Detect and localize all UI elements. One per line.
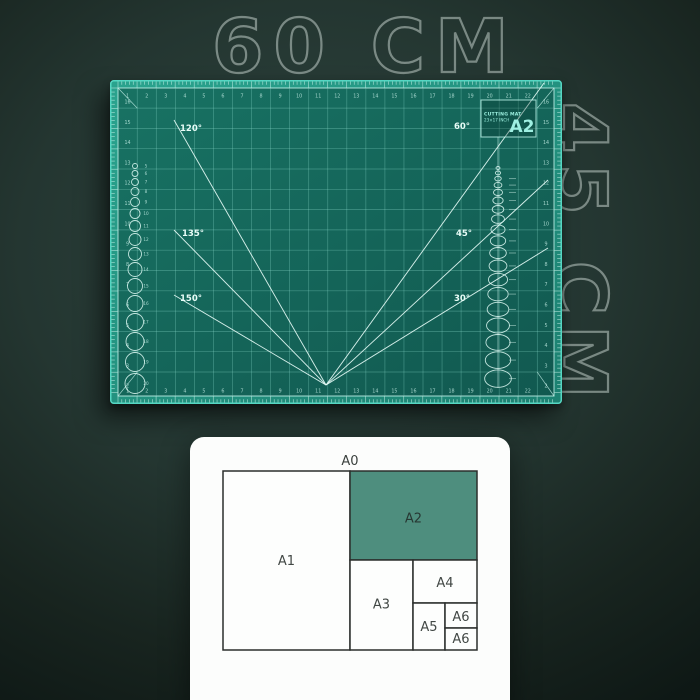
svg-text:17: 17 xyxy=(429,94,435,100)
svg-text:16: 16 xyxy=(410,94,416,100)
svg-text:1: 1 xyxy=(126,94,129,100)
width-dimension-label: 60 СМ xyxy=(212,4,519,90)
svg-text:3: 3 xyxy=(164,94,167,100)
svg-text:18: 18 xyxy=(143,339,149,344)
paper-a2-label: A2 xyxy=(405,512,422,527)
svg-text:15: 15 xyxy=(391,94,397,100)
paper-a6-bottom-label: A6 xyxy=(452,632,469,647)
svg-text:3: 3 xyxy=(544,363,547,369)
svg-text:15: 15 xyxy=(143,284,149,289)
svg-text:20: 20 xyxy=(487,389,493,395)
svg-text:14: 14 xyxy=(143,267,149,272)
svg-text:7: 7 xyxy=(240,94,243,100)
svg-text:10: 10 xyxy=(296,94,302,100)
svg-text:19: 19 xyxy=(468,389,474,395)
angle-label-150: 150° xyxy=(180,294,202,304)
svg-text:11: 11 xyxy=(315,94,321,100)
svg-text:12: 12 xyxy=(334,94,340,100)
svg-text:11: 11 xyxy=(315,389,321,395)
svg-text:13: 13 xyxy=(143,252,149,257)
svg-text:11: 11 xyxy=(543,201,549,207)
svg-text:13: 13 xyxy=(543,160,549,166)
svg-text:14: 14 xyxy=(372,389,378,395)
svg-text:8: 8 xyxy=(544,262,547,268)
svg-text:19: 19 xyxy=(143,360,149,365)
mat-subtitle-text: 23×17 INCH xyxy=(484,118,509,123)
cutting-mat-surface: 1122334455667788991010111112121313141415… xyxy=(110,80,562,404)
product-photo: 60 СМ 45 СМ 1122334455667788991010111112… xyxy=(0,0,700,700)
svg-text:6: 6 xyxy=(145,171,148,176)
svg-text:11: 11 xyxy=(143,224,149,229)
paper-a5-label: A5 xyxy=(420,620,437,635)
svg-text:8: 8 xyxy=(260,389,263,395)
svg-text:6: 6 xyxy=(221,94,224,100)
svg-text:8: 8 xyxy=(145,189,148,194)
svg-text:13: 13 xyxy=(353,389,359,395)
svg-text:13: 13 xyxy=(124,160,130,166)
svg-text:7: 7 xyxy=(240,389,243,395)
svg-text:2: 2 xyxy=(145,94,148,100)
paper-a0-label: A0 xyxy=(223,454,477,469)
svg-text:4: 4 xyxy=(183,389,186,395)
svg-text:10: 10 xyxy=(296,389,302,395)
paper-size-diagram: A1 A2 A3 A4 A5 A6 A6 xyxy=(221,469,479,653)
svg-text:4: 4 xyxy=(183,94,186,100)
svg-text:5: 5 xyxy=(202,94,205,100)
svg-text:6: 6 xyxy=(544,303,547,309)
angle-label-30: 30° xyxy=(454,294,470,304)
svg-text:21: 21 xyxy=(506,94,512,100)
paper-a4-label: A4 xyxy=(436,576,453,591)
svg-text:7: 7 xyxy=(145,180,148,185)
svg-text:5: 5 xyxy=(202,389,205,395)
svg-text:5: 5 xyxy=(544,323,547,329)
svg-text:13: 13 xyxy=(353,94,359,100)
mat-title-box: CUTTING MAT 23×17 INCH A2 xyxy=(481,100,536,137)
svg-text:22: 22 xyxy=(525,389,531,395)
svg-text:6: 6 xyxy=(221,389,224,395)
svg-text:5: 5 xyxy=(145,164,148,169)
svg-text:11: 11 xyxy=(124,201,130,207)
svg-text:20: 20 xyxy=(487,94,493,100)
svg-text:17: 17 xyxy=(143,320,149,325)
svg-text:10: 10 xyxy=(143,211,149,216)
angle-label-135: 135° xyxy=(182,229,204,239)
svg-text:12: 12 xyxy=(124,181,130,187)
svg-text:9: 9 xyxy=(279,94,282,100)
svg-text:4: 4 xyxy=(544,343,547,349)
svg-text:20: 20 xyxy=(143,381,149,386)
paper-a3-label: A3 xyxy=(373,598,390,613)
angle-label-120: 120° xyxy=(180,124,202,134)
cutting-mat: 1122334455667788991010111112121313141415… xyxy=(110,80,562,404)
paper-a1-label: A1 xyxy=(278,554,295,569)
svg-text:16: 16 xyxy=(543,100,549,106)
svg-text:8: 8 xyxy=(260,94,263,100)
svg-text:15: 15 xyxy=(391,389,397,395)
svg-text:18: 18 xyxy=(448,94,454,100)
svg-text:14: 14 xyxy=(124,140,130,146)
svg-text:9: 9 xyxy=(145,200,148,205)
svg-text:16: 16 xyxy=(410,389,416,395)
svg-text:2: 2 xyxy=(544,384,547,390)
svg-text:14: 14 xyxy=(543,140,549,146)
svg-text:16: 16 xyxy=(124,100,130,106)
svg-text:3: 3 xyxy=(164,389,167,395)
svg-text:17: 17 xyxy=(429,389,435,395)
svg-text:9: 9 xyxy=(126,242,129,248)
paper-a6-top-label: A6 xyxy=(452,610,469,625)
svg-text:14: 14 xyxy=(372,94,378,100)
svg-text:10: 10 xyxy=(543,221,549,227)
svg-text:15: 15 xyxy=(543,120,549,126)
angle-label-60: 60° xyxy=(454,122,470,132)
svg-text:16: 16 xyxy=(143,301,149,306)
svg-text:15: 15 xyxy=(124,120,130,126)
svg-text:18: 18 xyxy=(448,389,454,395)
svg-text:9: 9 xyxy=(279,389,282,395)
mat-size-badge: A2 xyxy=(510,117,535,137)
svg-text:2: 2 xyxy=(145,389,148,395)
svg-text:7: 7 xyxy=(544,282,547,288)
svg-text:21: 21 xyxy=(506,389,512,395)
svg-text:22: 22 xyxy=(525,94,531,100)
svg-text:9: 9 xyxy=(544,242,547,248)
svg-text:19: 19 xyxy=(468,94,474,100)
paper-size-card: A0 A1 A2 A3 A4 A5 A6 A6 xyxy=(190,437,510,700)
svg-text:12: 12 xyxy=(143,237,149,242)
angle-label-45: 45° xyxy=(456,229,472,239)
svg-text:12: 12 xyxy=(334,389,340,395)
